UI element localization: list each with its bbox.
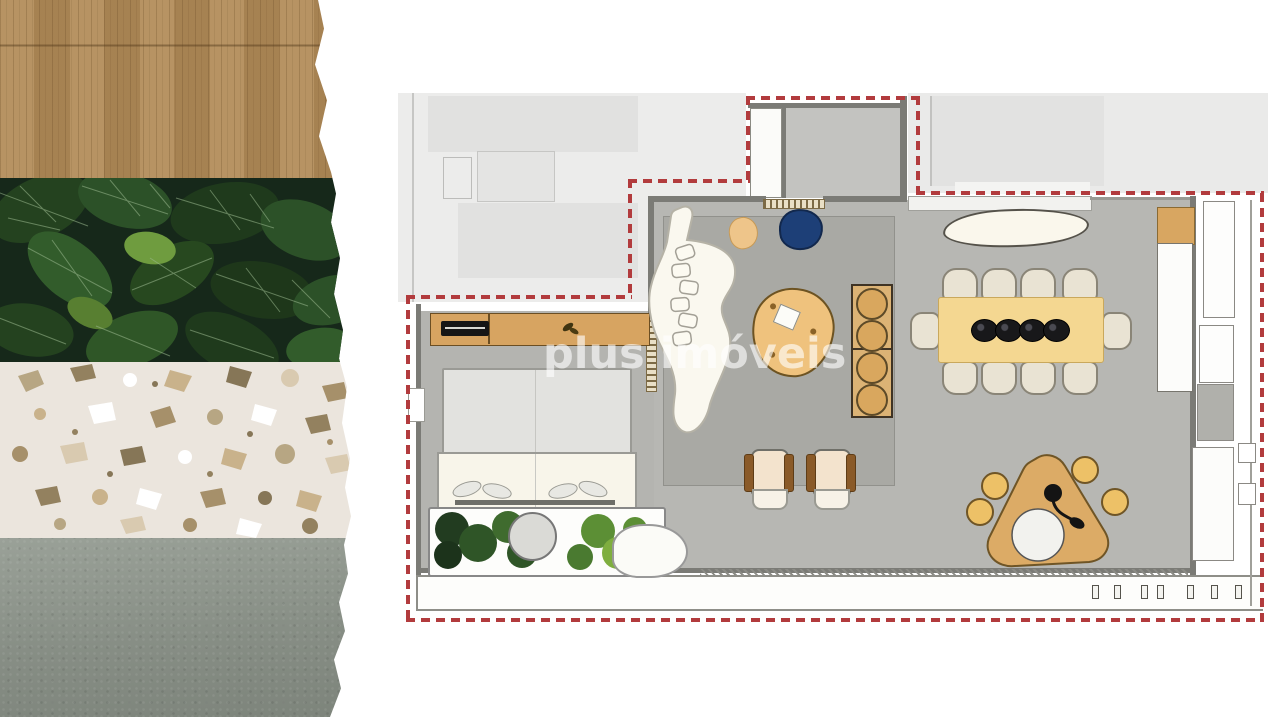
round-side-table (508, 512, 557, 561)
adjacent-room (428, 96, 638, 152)
watermark-text: plus imóveis (543, 329, 846, 379)
boundary-dash (406, 295, 632, 299)
closet (1203, 201, 1235, 318)
island-lamp (1044, 484, 1062, 502)
entry-hall-floor (786, 108, 900, 198)
wall-stub (1238, 483, 1256, 505)
boundary-dash-top-right (916, 191, 1264, 195)
dining-chair (910, 312, 940, 350)
duvet-crease (535, 370, 536, 459)
wall-stub (1238, 443, 1256, 463)
bar-stool (1101, 488, 1129, 516)
armchair-arm (744, 454, 754, 492)
console-round-item (856, 288, 888, 320)
armchair-arm (846, 454, 856, 492)
boundary-dash-bottom (406, 618, 1264, 622)
outer-wall-line (1250, 200, 1252, 606)
table-book (773, 304, 801, 331)
balcony-rail-baluster (1235, 585, 1242, 599)
armchair (806, 449, 854, 507)
bar-stool (1071, 456, 1099, 484)
wall (1090, 197, 1196, 200)
armchair-seat (752, 489, 788, 510)
balcony-rail-baluster (1092, 585, 1099, 599)
balcony-rail-baluster (1187, 585, 1194, 599)
boundary-dash (746, 96, 750, 183)
adjacent-room (932, 96, 1104, 186)
floor-plan: plus imóveis (0, 0, 1280, 717)
tv (441, 321, 489, 336)
armchair-arm (806, 454, 816, 492)
boundary-dash-left (406, 295, 410, 622)
adjacent-fixture (443, 157, 472, 199)
dining-chair (1102, 312, 1132, 350)
service-box (1197, 384, 1234, 441)
adjacent-bed (477, 151, 555, 202)
white-pouf (612, 524, 688, 578)
armchair (744, 449, 792, 507)
armchair-arm (784, 454, 794, 492)
wall (416, 304, 421, 575)
dish (995, 319, 1022, 342)
wardrobe (1157, 243, 1193, 392)
wall (900, 96, 907, 198)
bedroom-window (408, 388, 425, 422)
cabinet (1157, 207, 1195, 245)
boundary-dash (628, 179, 632, 299)
boundary-dash (916, 96, 920, 195)
tv-screen-line (445, 327, 485, 329)
entry-closet (750, 108, 782, 198)
adjacent-wall-line (412, 93, 414, 302)
dish (971, 319, 998, 342)
console-round-item (856, 352, 888, 384)
closet (1199, 325, 1234, 383)
island-sink (1012, 509, 1064, 561)
headboard-bar (455, 500, 615, 505)
dish (1019, 319, 1046, 342)
bench-divider (535, 454, 536, 514)
table-dot (770, 303, 777, 310)
wall (823, 196, 907, 202)
bed-duvet (442, 368, 632, 461)
boundary-dash-right (1260, 193, 1264, 622)
bar-stool (981, 472, 1009, 500)
balcony-rail-baluster (1114, 585, 1121, 599)
dining-chair (942, 361, 978, 395)
bar-stool (966, 498, 994, 526)
screenshot-root: plus imóveis (0, 0, 1280, 717)
adjacent-room (458, 203, 638, 278)
console-round-item (856, 384, 888, 416)
dish (1043, 319, 1070, 342)
dining-chair (1062, 361, 1098, 395)
balcony-rail-baluster (1211, 585, 1218, 599)
dish-set (974, 319, 1074, 341)
dining-chair (1020, 361, 1056, 395)
balcony-strip (416, 575, 1263, 611)
boundary-dash-top (746, 96, 920, 100)
armchair-seat (814, 489, 850, 510)
dining-chair (981, 361, 1017, 395)
boundary-dash (628, 179, 750, 183)
balcony-rail-baluster (1141, 585, 1148, 599)
entry-threshold-hatch (763, 199, 825, 209)
console-round-item (856, 320, 888, 352)
closet (1192, 447, 1234, 561)
balcony-rail-baluster (1157, 585, 1164, 599)
adjacent-wall-line (930, 96, 932, 186)
